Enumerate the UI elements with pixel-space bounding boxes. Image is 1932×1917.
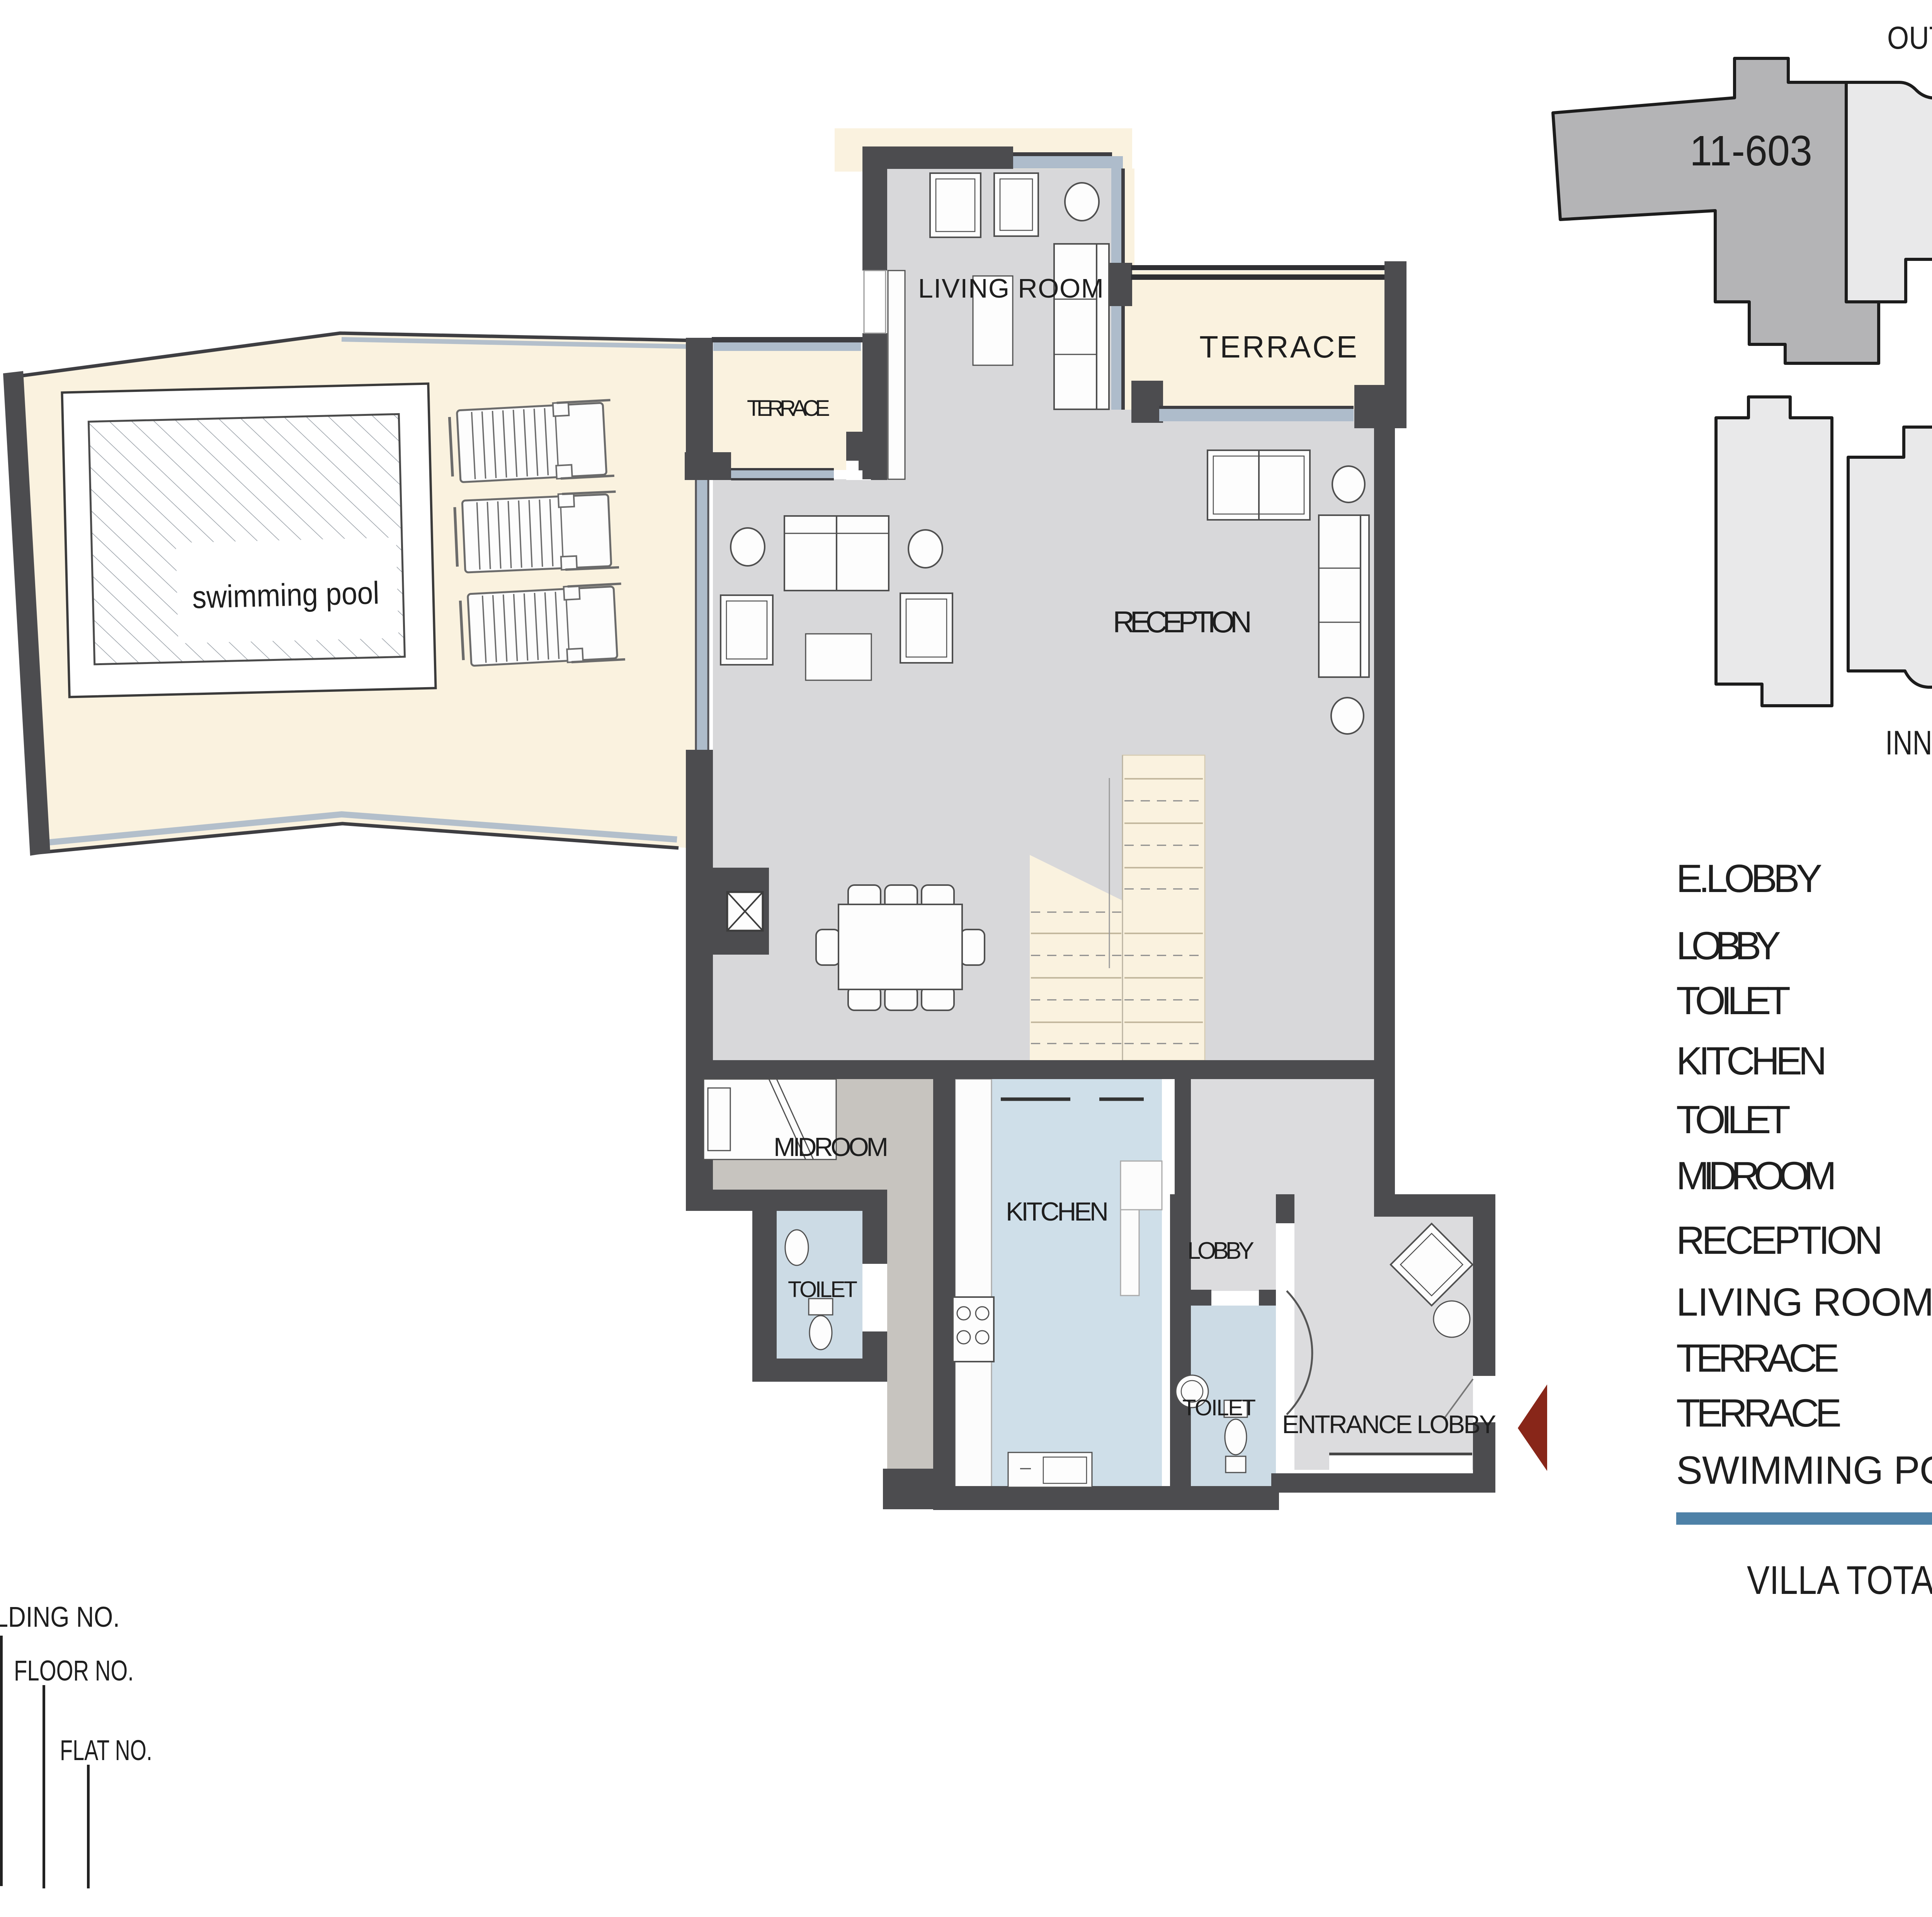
svg-text:TERRACE: TERRACE (1199, 330, 1357, 364)
svg-text:TERRACE: TERRACE (747, 396, 830, 421)
svg-text:MIDROOM: MIDROOM (774, 1132, 888, 1162)
svg-text:ENTRANCE LOBBY: ENTRANCE LOBBY (1282, 1410, 1496, 1439)
svg-text:KITCHEN: KITCHEN (1676, 1039, 1827, 1083)
svg-text:FLOOR NO.: FLOOR NO. (14, 1655, 134, 1687)
svg-text:MIDROOM: MIDROOM (1676, 1154, 1837, 1198)
svg-text:LIVING ROOM: LIVING ROOM (1676, 1280, 1932, 1324)
svg-text:INNER PLAZA: INNER PLAZA (1885, 724, 1932, 762)
svg-text:TERRACE: TERRACE (1676, 1391, 1842, 1435)
svg-text:RECEPTION: RECEPTION (1113, 605, 1252, 639)
svg-text:SWIMMING POOL: SWIMMING POOL (1676, 1448, 1932, 1492)
svg-text:OUTER VIEW: OUTER VIEW (1887, 20, 1932, 56)
svg-text:TOILET: TOILET (1182, 1395, 1256, 1420)
svg-text:TOILET: TOILET (1676, 1098, 1791, 1142)
svg-text:E.LOBBY: E.LOBBY (1676, 856, 1822, 901)
svg-text:FLAT NO.: FLAT NO. (60, 1734, 152, 1766)
svg-text:BUILDING NO.: BUILDING NO. (0, 1601, 120, 1633)
svg-text:11-603: 11-603 (1690, 127, 1812, 175)
svg-text:LIVING ROOM: LIVING ROOM (918, 273, 1104, 303)
svg-text:LOBBY: LOBBY (1187, 1238, 1254, 1264)
svg-text:LOBBY: LOBBY (1676, 924, 1781, 968)
svg-text:TOILET: TOILET (788, 1277, 857, 1302)
svg-text:TOILET: TOILET (1676, 979, 1791, 1023)
svg-text:swimming pool: swimming pool (192, 575, 379, 615)
svg-text:VILLA TOTAL AREA 547.00M: VILLA TOTAL AREA 547.00M (1747, 1558, 1932, 1603)
svg-text:TERRACE: TERRACE (1676, 1336, 1839, 1380)
svg-text:RECEPTION: RECEPTION (1676, 1218, 1883, 1262)
svg-text:KITCHEN: KITCHEN (1006, 1197, 1109, 1226)
